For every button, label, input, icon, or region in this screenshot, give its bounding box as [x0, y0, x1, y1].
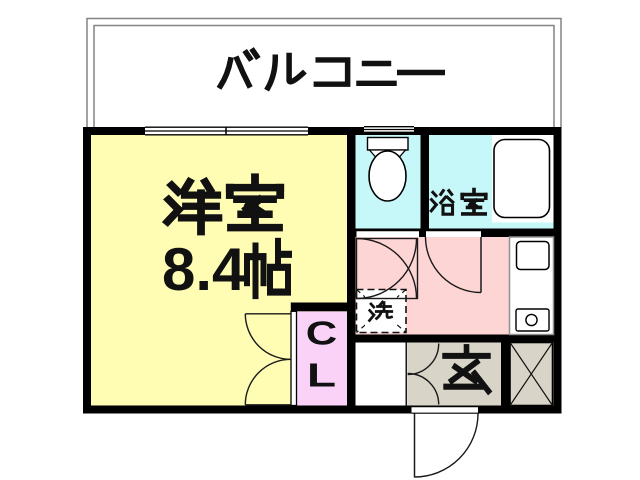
svg-text:L: L [307, 357, 336, 394]
svg-text:C: C [306, 315, 337, 352]
svg-text:8.4: 8.4 [162, 236, 246, 303]
